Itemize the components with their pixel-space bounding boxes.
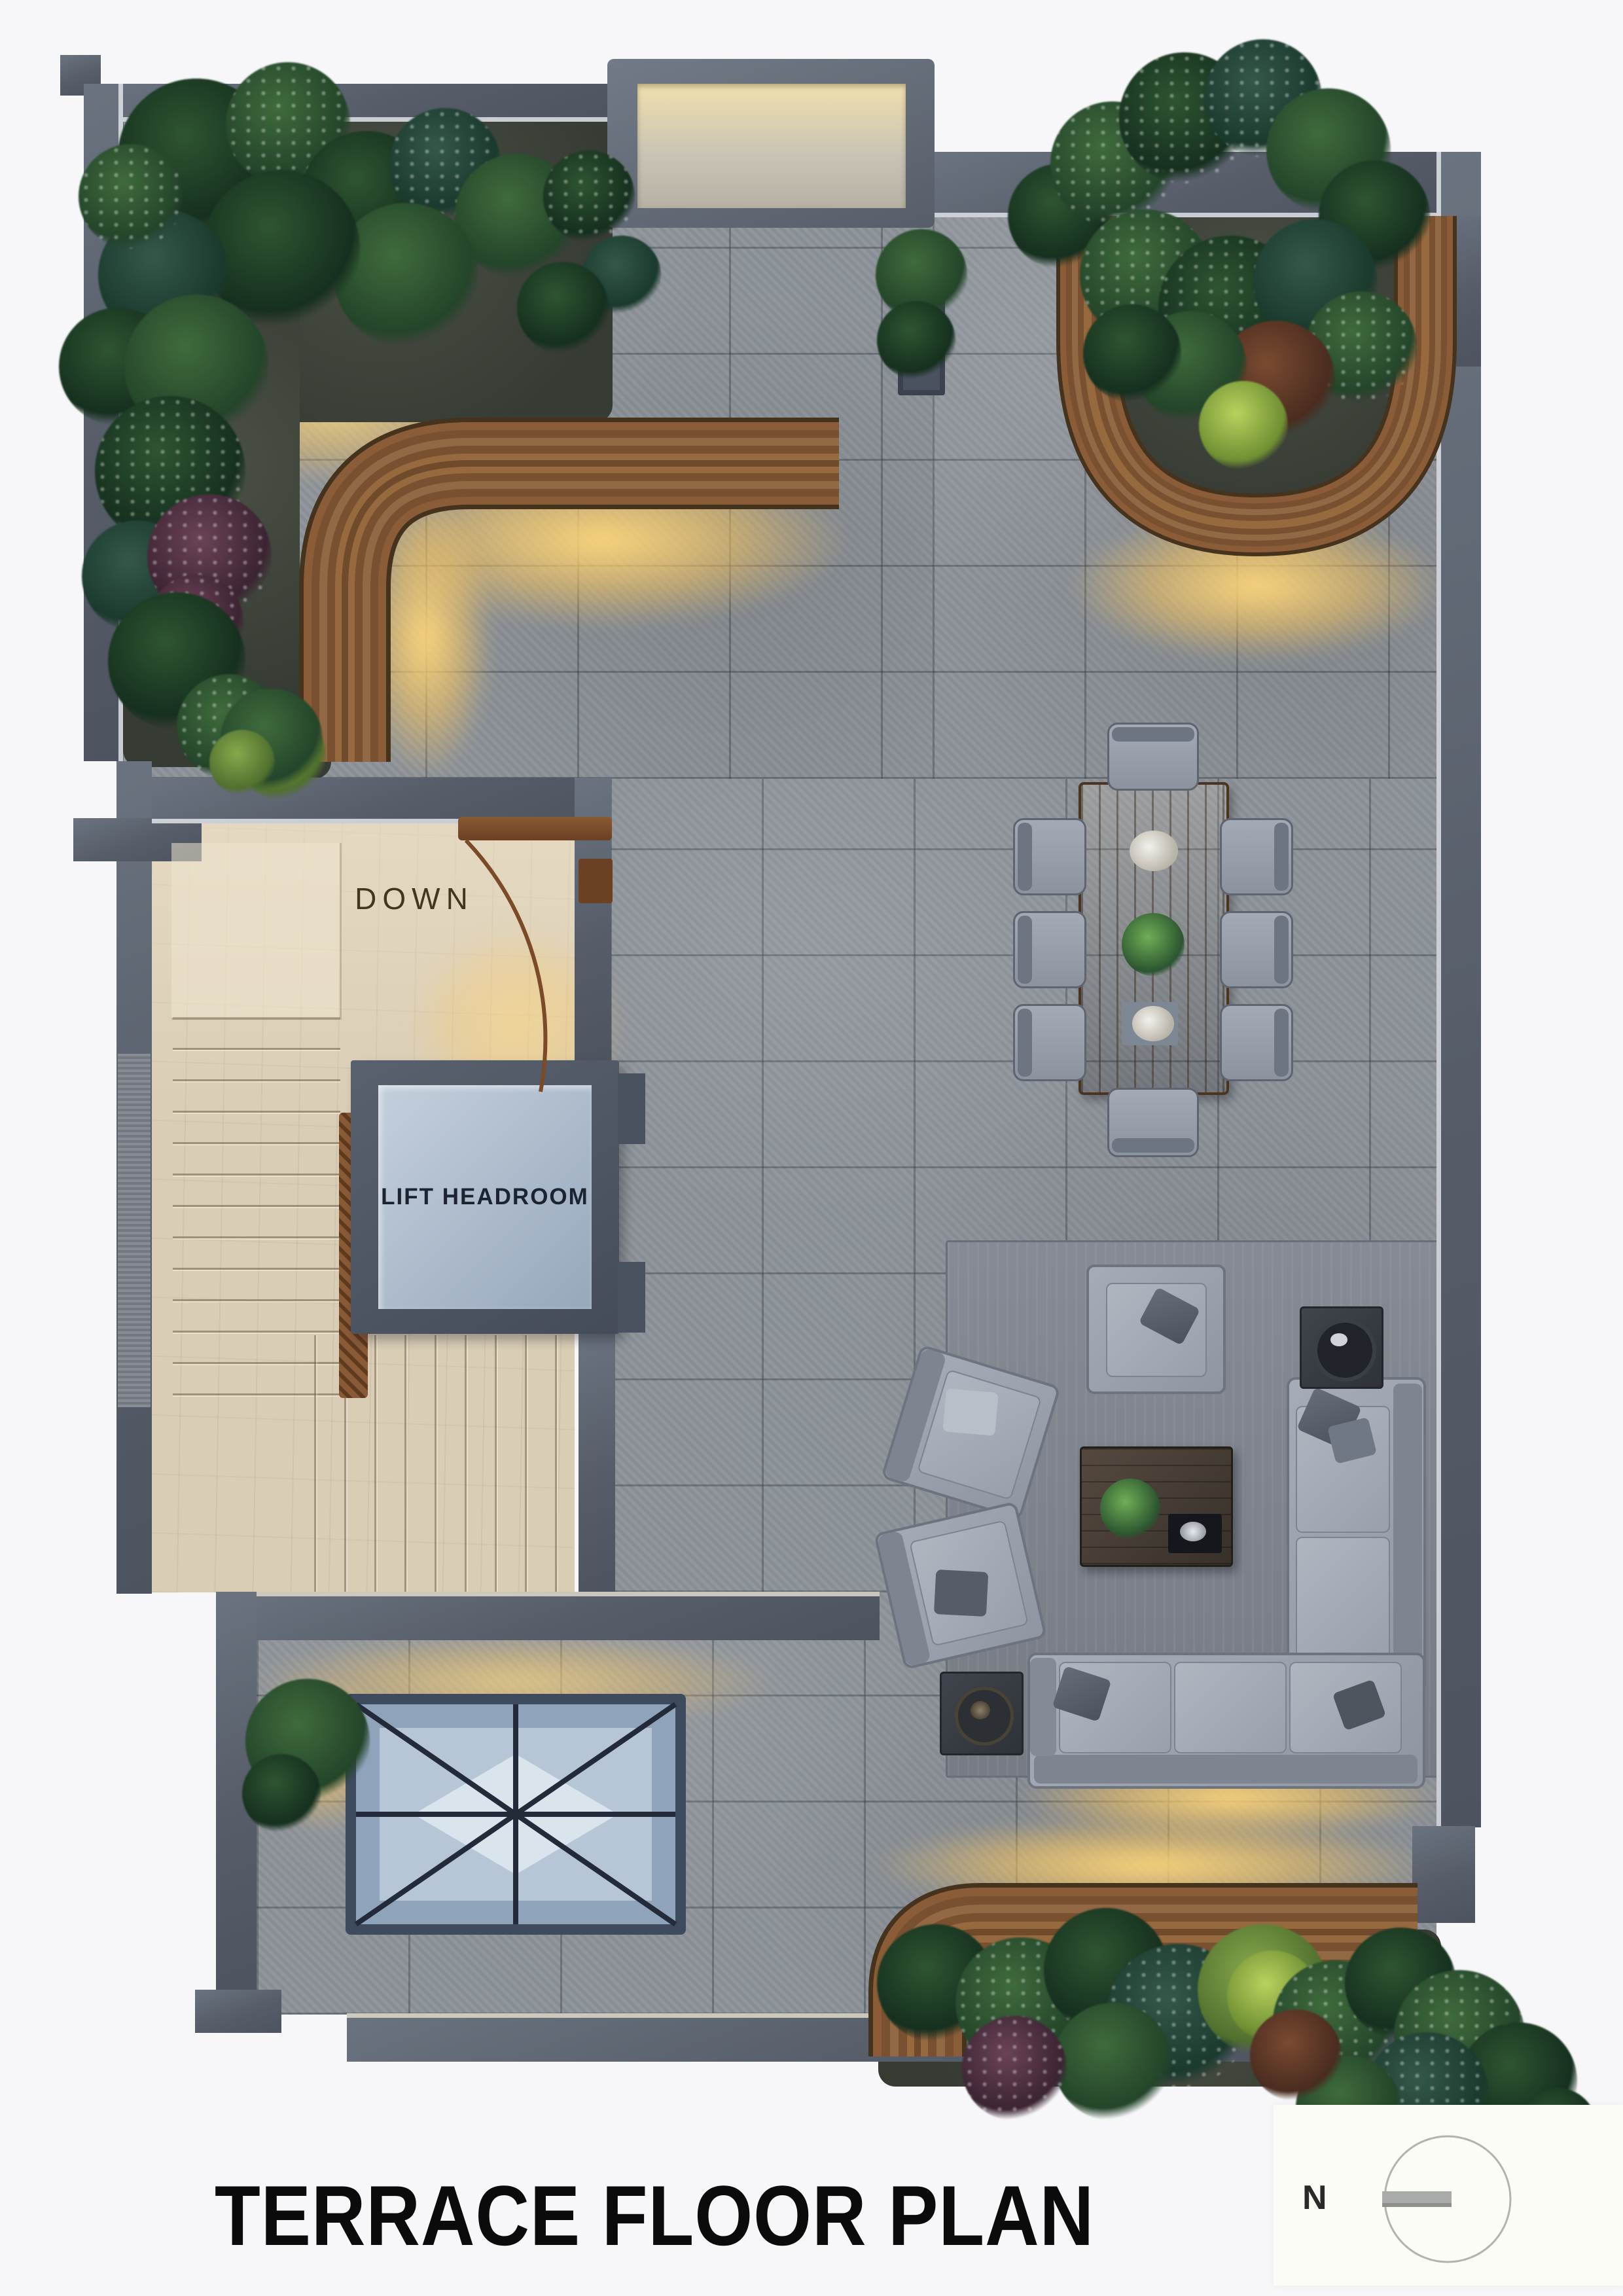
side-table-sw: [940, 1672, 1024, 1755]
stairs-down-label: DOWN: [346, 881, 483, 916]
plant-bush: [209, 730, 275, 795]
dining-chair-backrest: [1018, 1009, 1032, 1077]
plant-bush: [242, 1754, 321, 1833]
plant-bush: [962, 2016, 1067, 2121]
dining-chair: [1220, 818, 1293, 895]
coffee-table: [1080, 1446, 1233, 1567]
coffee-table-tray: [1168, 1514, 1222, 1553]
terrace-floor-plan: DOWN LIFT HEADROOM: [0, 0, 1623, 2296]
coffee-table-plant: [1100, 1479, 1160, 1539]
sofa-section-vertical: [1287, 1377, 1426, 1693]
dining-chair-backrest: [1274, 1009, 1289, 1077]
dining-chair-backrest: [1274, 916, 1289, 984]
side-table-ne: [1300, 1306, 1383, 1389]
plant-bush: [1199, 381, 1288, 470]
bench-top-left: [345, 463, 839, 762]
dining-chair-backrest: [1112, 727, 1194, 742]
sofa-section-horizontal: [1027, 1653, 1425, 1789]
dining-chair-backrest: [1112, 1138, 1194, 1153]
dining-chair-backrest: [1018, 916, 1032, 984]
dining-chair-backrest: [1018, 823, 1032, 891]
dining-plate-1: [1130, 831, 1178, 871]
dining-table: [1079, 782, 1229, 1095]
door-swing-arc: [466, 840, 545, 1092]
dining-plate-2: [1132, 1006, 1174, 1041]
dining-chair: [1013, 911, 1086, 988]
dining-chair: [1107, 723, 1199, 791]
dining-chair: [1013, 1004, 1086, 1081]
plant-bush: [1083, 304, 1181, 403]
plant-bush: [543, 151, 635, 242]
dining-chair-backrest: [1274, 823, 1289, 891]
north-arrow-icon: [1274, 2105, 1623, 2286]
dining-chair: [1013, 818, 1086, 895]
dining-centerpiece-plant: [1122, 913, 1185, 976]
plant-bush: [79, 144, 183, 249]
page-title: TERRACE FLOOR PLAN: [79, 2166, 1230, 2265]
plant-bush: [877, 301, 955, 380]
north-arrow-box: N: [1274, 2105, 1623, 2286]
plant-bush: [517, 262, 609, 353]
skylight: [346, 1694, 686, 1935]
dining-chair: [1220, 911, 1293, 988]
plant-bush: [1250, 2009, 1342, 2101]
dining-chair: [1220, 1004, 1293, 1081]
dining-chair: [1107, 1088, 1199, 1157]
plant-bush: [1054, 2003, 1171, 2121]
armchair-top: [1086, 1265, 1226, 1394]
